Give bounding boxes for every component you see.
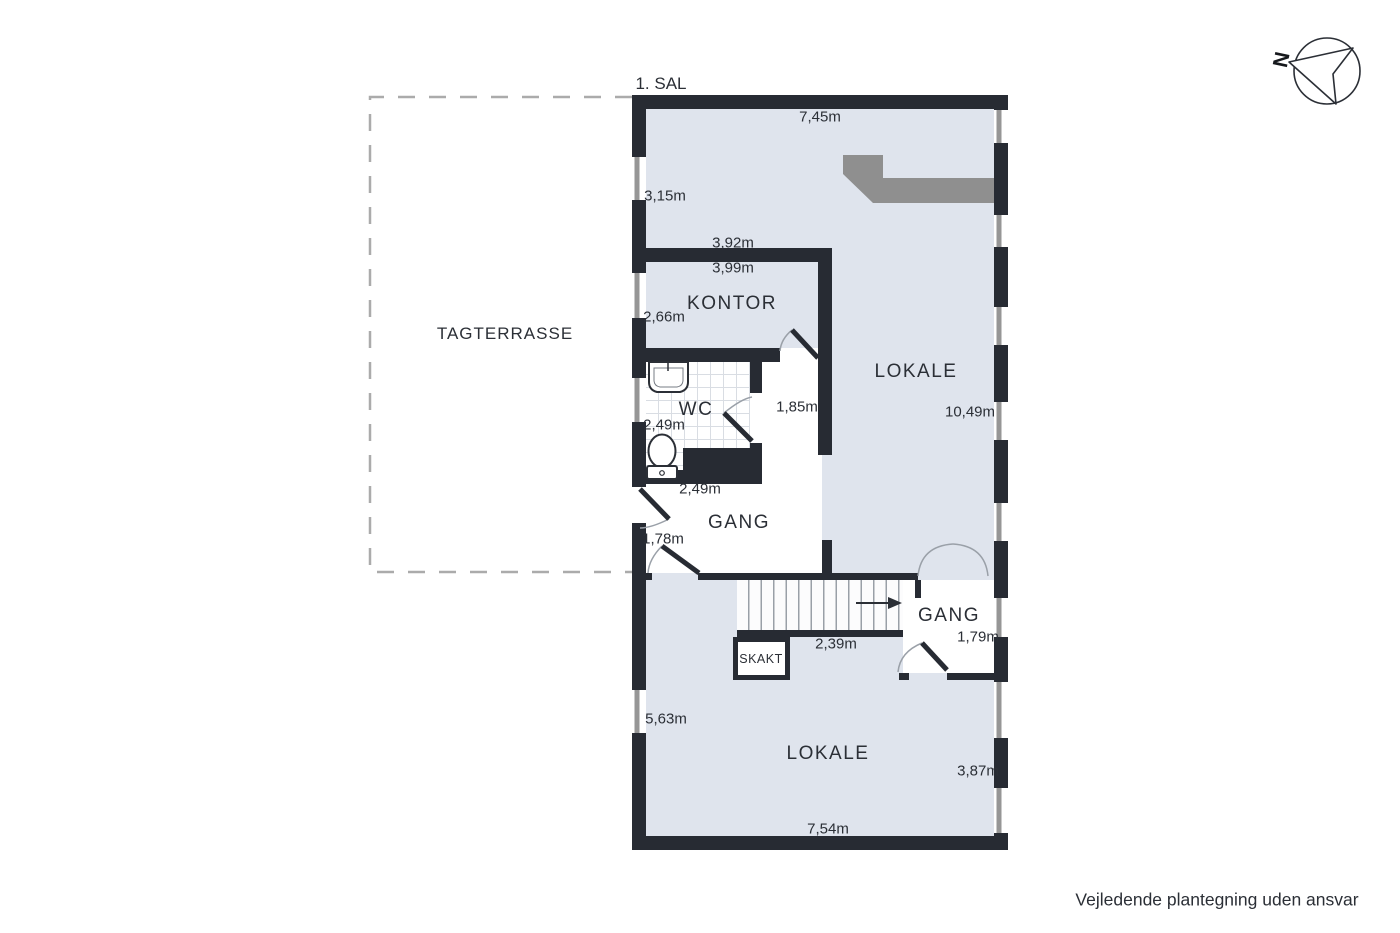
dim-terrace-door: 1,78m <box>642 531 684 548</box>
floor-lokale-upper-top <box>646 109 994 248</box>
dim-lokale-lower-right-height: 3,87m <box>957 763 999 780</box>
wall-gang-lower-bottom-right <box>947 673 994 680</box>
wall-wc-block <box>683 448 750 472</box>
dim-lokale-lower-width: 7,54m <box>807 821 849 838</box>
window <box>632 378 646 422</box>
wall-gang-lower-bottom-left <box>899 673 909 680</box>
compass-icon: N <box>1268 38 1360 104</box>
window <box>994 402 1008 440</box>
staircase <box>737 580 903 630</box>
dim-kontor-height: 2,66m <box>643 309 685 326</box>
window <box>994 682 1008 738</box>
window <box>994 110 1008 143</box>
disclaimer: Vejledende plantegning uden ansvar <box>1075 890 1358 911</box>
dim-kontor-width: 3,99m <box>712 260 754 277</box>
dim-lokale-upper-height: 10,49m <box>945 404 995 421</box>
door-opening-gang-lokale <box>652 573 698 580</box>
room-label-lokale-upper: LOKALE <box>875 361 958 383</box>
floor-title: 1. SAL <box>635 74 686 94</box>
dim-top-width: 7,45m <box>799 109 841 126</box>
dim-lokale-lower-left-height: 5,63m <box>645 711 687 728</box>
floor-inner-hall-low <box>762 455 822 484</box>
wall-stub-gang-lower <box>915 580 921 598</box>
window <box>994 307 1008 345</box>
floor-lokale-upper-right <box>832 248 994 455</box>
room-label-kontor: KONTOR <box>687 293 777 315</box>
compass-north-label: N <box>1268 50 1294 70</box>
door-opening-terrace <box>632 487 646 523</box>
dim-kontor-outer-width: 3,92m <box>712 235 754 252</box>
room-label-gang-upper: GANG <box>708 512 770 534</box>
room-label-gang-lower: GANG <box>918 605 980 627</box>
dim-gang-lower-width: 1,79m <box>957 629 999 646</box>
terrace-label: TAGTERRASSE <box>437 324 573 344</box>
door-opening-kontor <box>780 348 818 362</box>
door-opening-wc <box>750 393 762 443</box>
dim-stair-width: 2,39m <box>815 636 857 653</box>
room-label-wc: WC <box>679 399 714 421</box>
room-label-skakt: SKAKT <box>739 652 783 666</box>
window <box>994 788 1008 833</box>
window <box>994 503 1008 541</box>
window <box>994 215 1008 247</box>
dim-inner-hall-width: 1,85m <box>776 399 818 416</box>
dim-upper-left-height: 3,15m <box>644 188 686 205</box>
window <box>632 690 646 733</box>
floorplan-canvas: N 1. SAL TAGTERRASSE 7,45m 3,15m 3,92m 3… <box>0 0 1400 933</box>
dim-wc-width: 2,49m <box>679 481 721 498</box>
floor-lokale-upper-opening <box>822 455 994 540</box>
room-label-lokale-lower: LOKALE <box>787 743 870 765</box>
